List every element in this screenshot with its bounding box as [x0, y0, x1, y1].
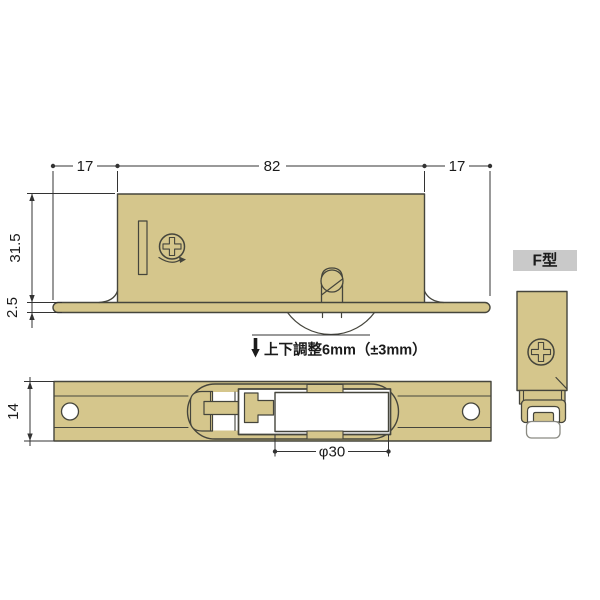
f-type-roller: [527, 422, 561, 439]
axle-bearing-bottom: [307, 431, 343, 439]
f-type-label: F型: [533, 252, 558, 270]
axle-bearing-top: [307, 385, 343, 393]
technical-drawing-page: 上下調整6mm（±3mm） 17 82 17 31.5 2.5: [0, 0, 600, 600]
dim-body-width: 82: [264, 158, 281, 175]
adjuster-bolt-shaft: [204, 402, 239, 415]
dim-plate-width: 14: [5, 403, 22, 420]
mount-hole-right: [463, 403, 480, 420]
adjustment-slot: [139, 221, 148, 275]
dim-right-margin: 17: [449, 158, 466, 175]
dim-roller-diameter: φ30: [319, 444, 345, 461]
bottom-view: [54, 382, 491, 442]
dim-left-margin: 17: [77, 158, 94, 175]
mount-hole-left: [62, 403, 79, 420]
front-flange: [53, 303, 490, 313]
adjustment-note: 上下調整6mm（±3mm）: [264, 341, 427, 359]
dim-body-height: 31.5: [7, 233, 24, 262]
door-roller-dimension-drawing: 上下調整6mm（±3mm） 17 82 17 31.5 2.5: [0, 0, 600, 600]
dim-flange-thickness: 2.5: [4, 297, 21, 318]
roller-wheel-bottom: [275, 393, 389, 432]
